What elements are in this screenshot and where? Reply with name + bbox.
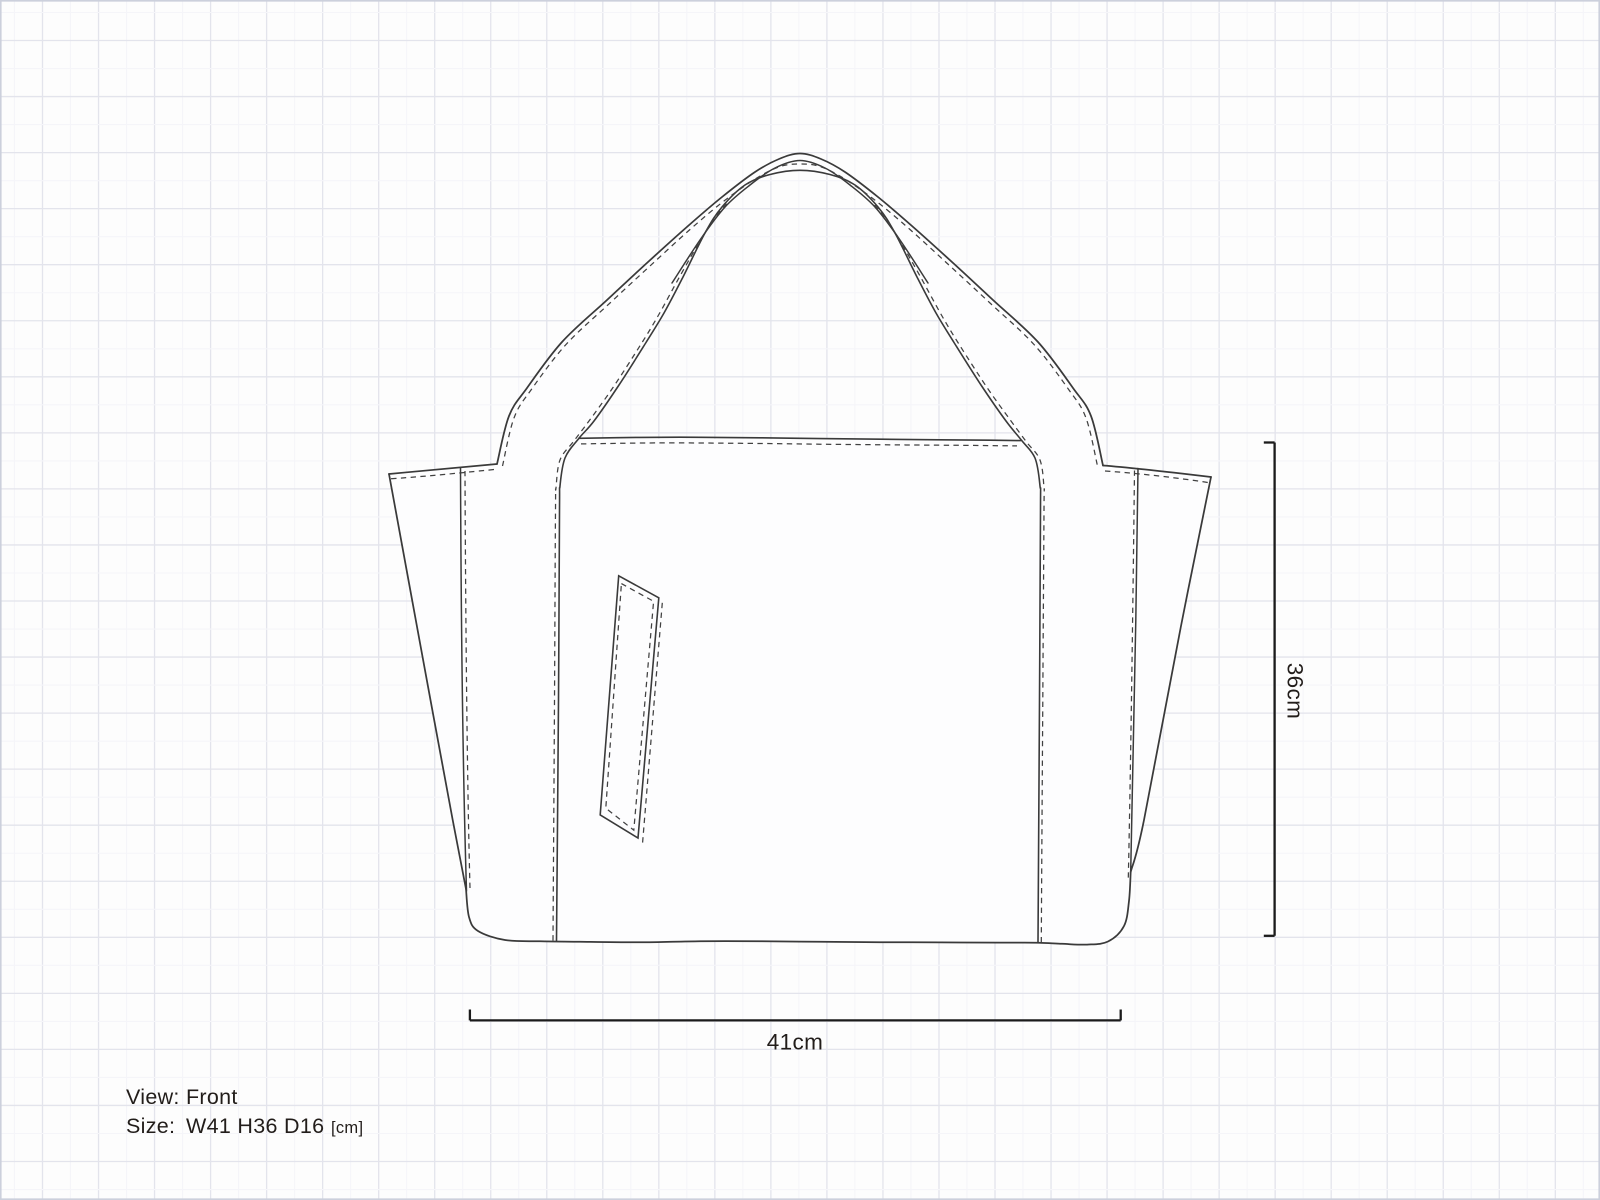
svg-text:View: Front: View: Front [126, 1085, 238, 1109]
svg-text:36cm: 36cm [1283, 663, 1308, 720]
svg-text:41cm: 41cm [767, 1030, 824, 1055]
